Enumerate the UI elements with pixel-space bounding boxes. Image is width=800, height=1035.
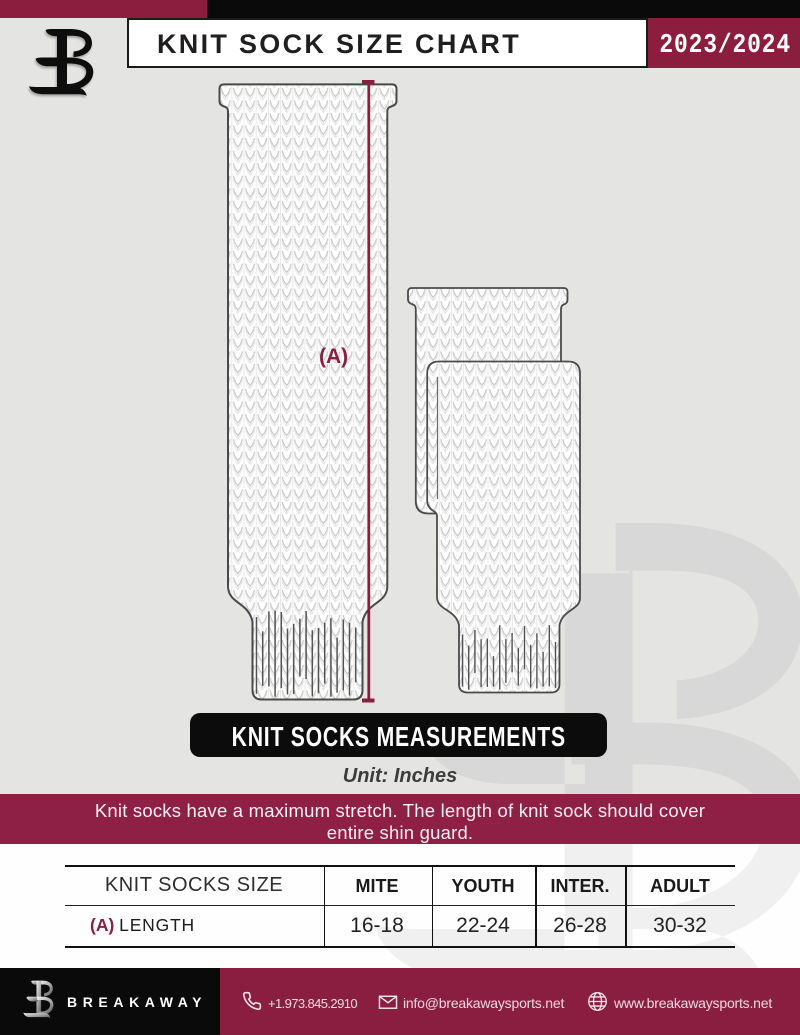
svg-text:(A): (A) xyxy=(319,345,348,368)
